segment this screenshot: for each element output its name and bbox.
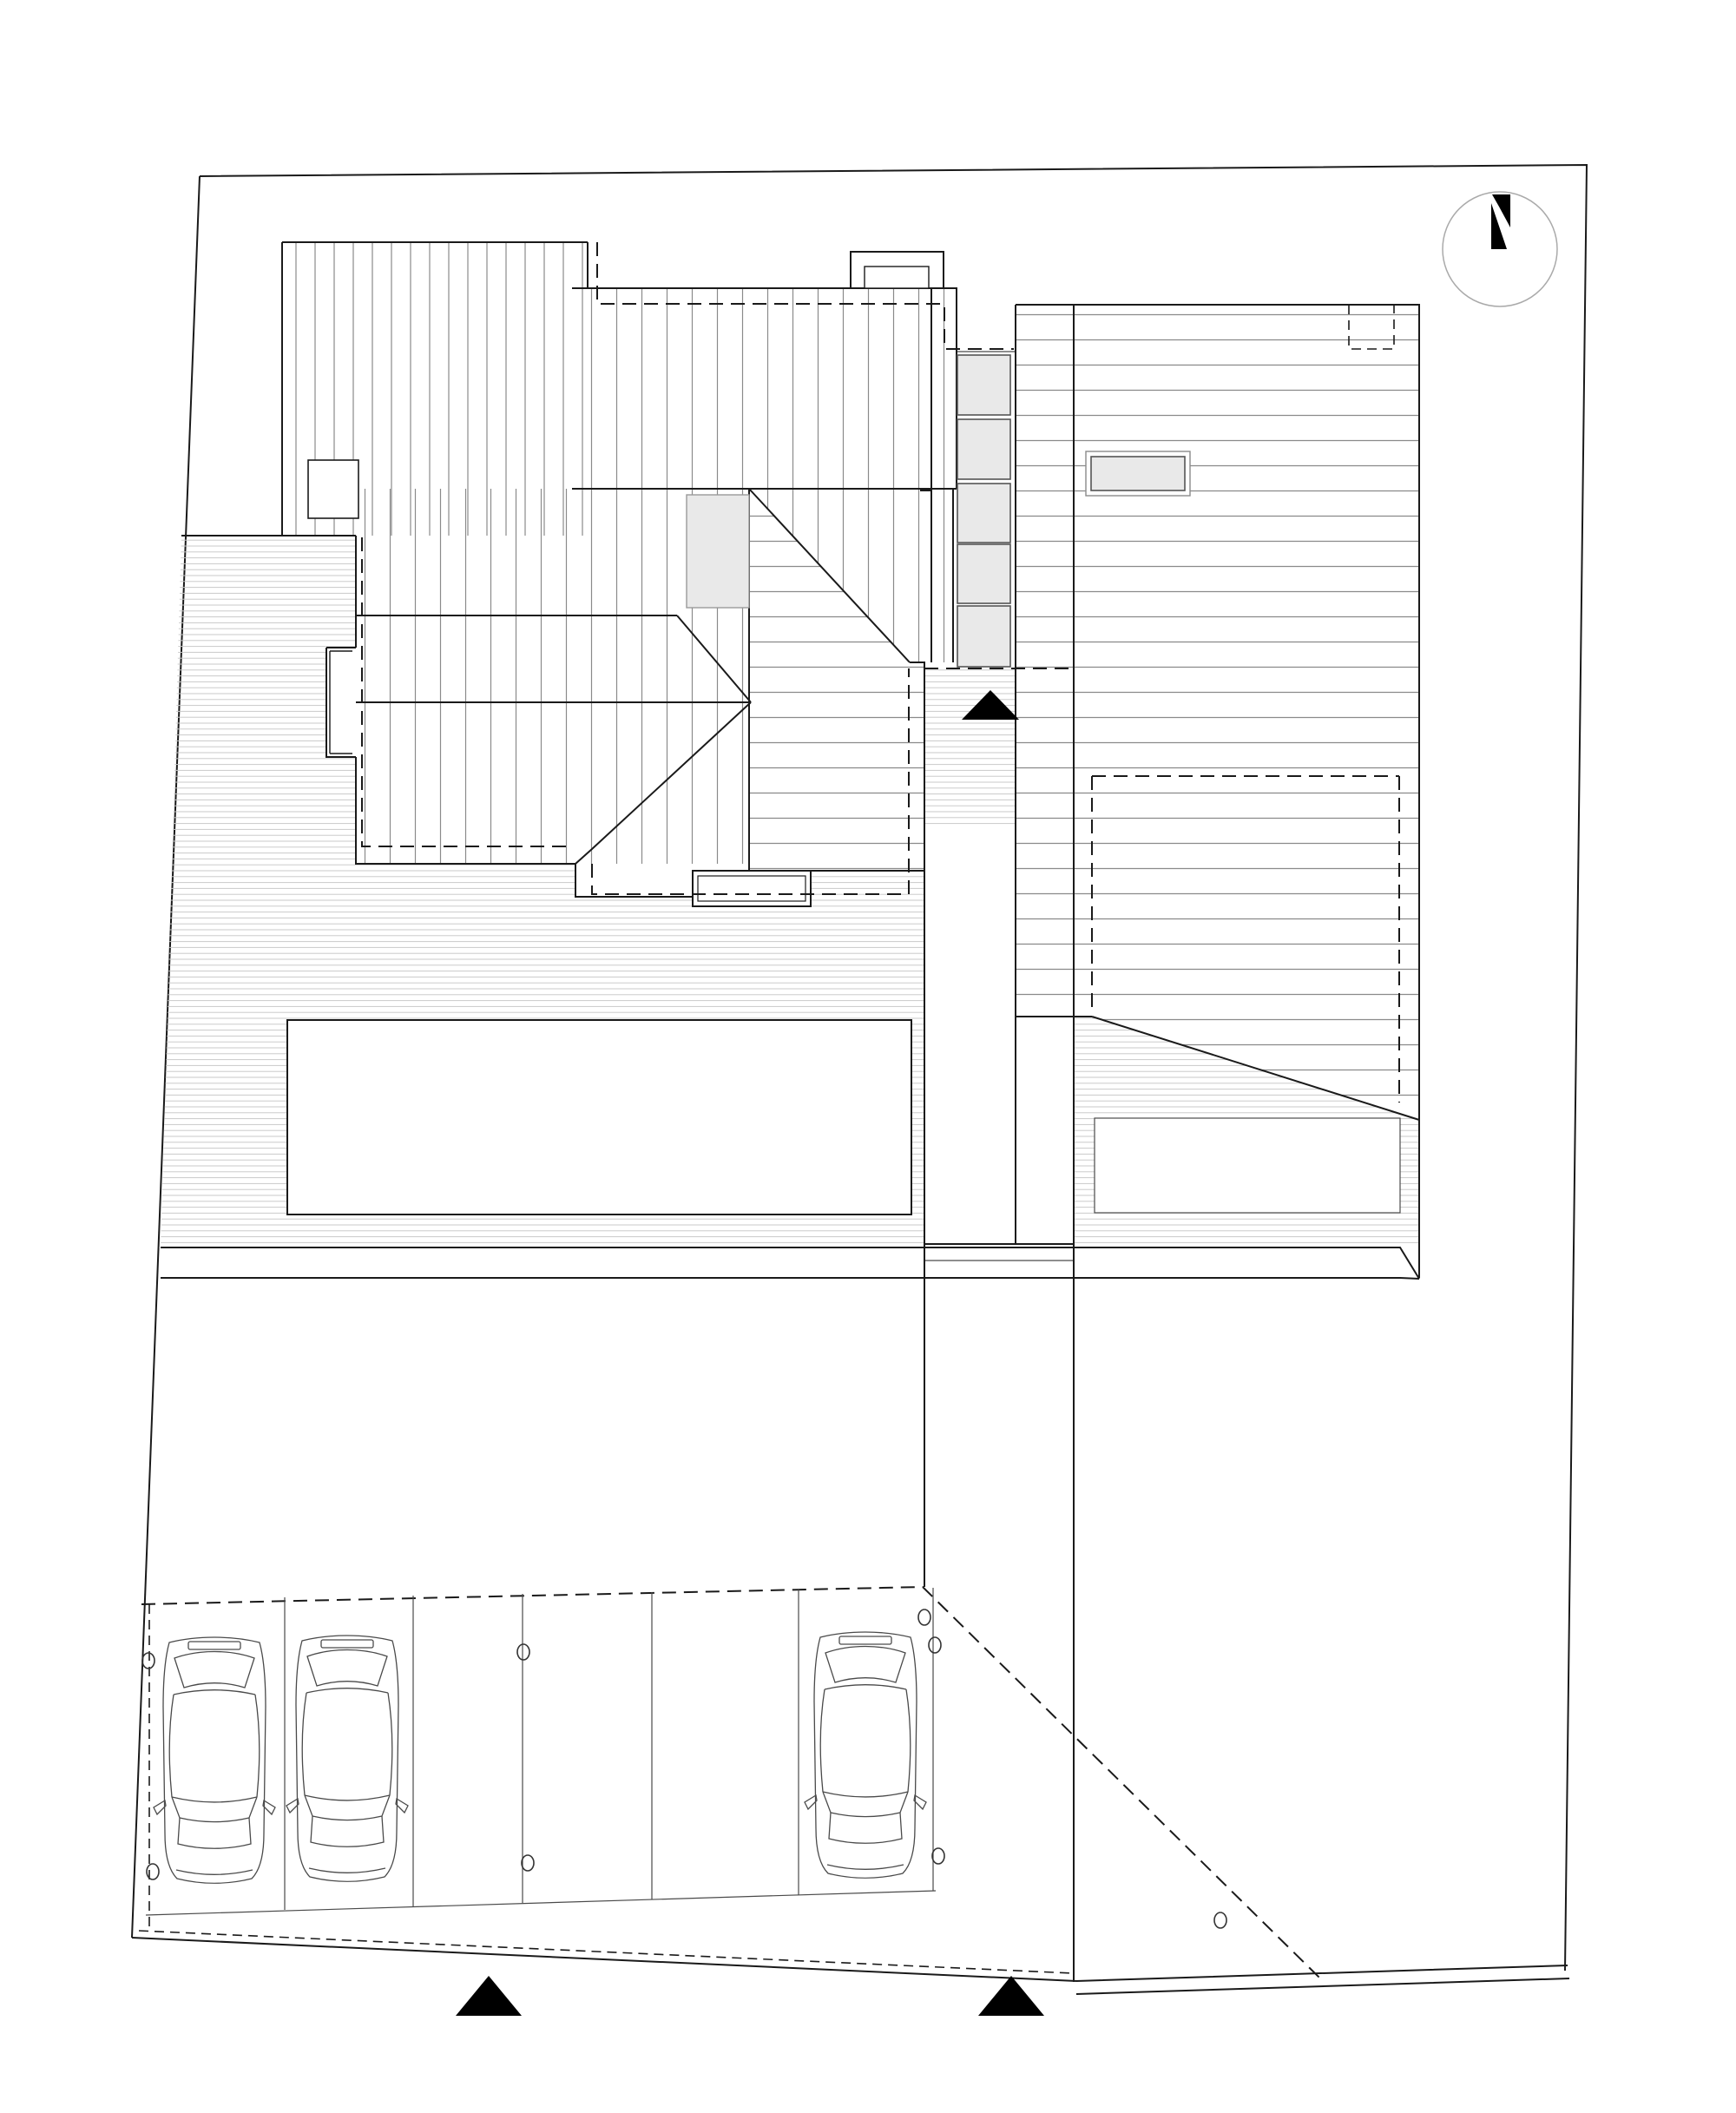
deck-hatch-entry-patch xyxy=(924,668,1016,825)
stair-block-3 xyxy=(957,484,1010,543)
roof-plane-top-center xyxy=(572,288,957,489)
stair-block-5 xyxy=(957,606,1010,667)
entry-marker-right xyxy=(978,1976,1044,2016)
stair-block-1 xyxy=(957,355,1010,415)
roof-plane-sw-wing xyxy=(356,615,751,864)
entry-marker-left xyxy=(456,1976,522,2016)
roof-vent xyxy=(1086,451,1190,496)
roof-notch xyxy=(308,460,358,518)
plan-sheet xyxy=(0,0,1736,2113)
drawing-page xyxy=(0,0,1736,2113)
stair-block-2 xyxy=(957,419,1010,479)
entry-stair xyxy=(957,352,1016,667)
stair-block-4 xyxy=(957,544,1010,603)
skylight xyxy=(687,495,749,608)
roof-plane-right xyxy=(1016,305,1419,1120)
site-plan-svg xyxy=(0,0,1736,2113)
chimney-south xyxy=(693,871,811,906)
deck-edge-lower xyxy=(161,1278,1419,1279)
chimney-north xyxy=(851,252,944,288)
